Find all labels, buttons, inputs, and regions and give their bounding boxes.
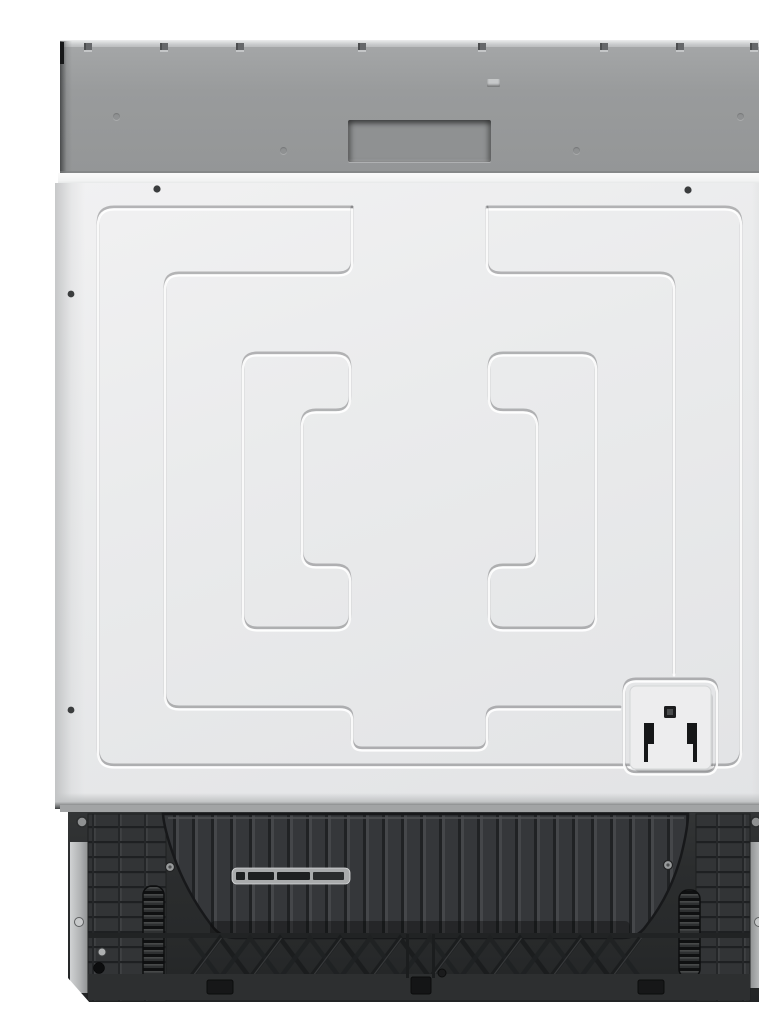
door-right-edge-shade xyxy=(752,183,759,809)
side-rail-left xyxy=(70,842,88,993)
base-top-sill xyxy=(60,805,759,812)
mounting-clip xyxy=(236,43,244,52)
mounting-clip xyxy=(750,43,758,52)
dishwasher-front-photo xyxy=(40,16,759,1016)
panel-screw-dimple xyxy=(280,147,287,154)
mounting-clip xyxy=(84,43,92,52)
panel-screw-dimple xyxy=(573,147,580,154)
panel-vent-hole xyxy=(487,79,500,87)
panel-corner-notch-left xyxy=(60,42,64,64)
machine-base xyxy=(68,811,759,1002)
panel-screw-dimple xyxy=(737,113,744,120)
mounting-clip xyxy=(160,43,168,52)
mounting-clip xyxy=(676,43,684,52)
mounting-clip xyxy=(600,43,608,52)
side-rail-right xyxy=(750,842,759,988)
panel-screw-dimple xyxy=(113,113,120,120)
door-left-edge-shade xyxy=(55,183,85,809)
display-window-cutout xyxy=(348,120,491,162)
mounting-clip xyxy=(358,43,366,52)
door-panel xyxy=(55,183,759,809)
mounting-clip xyxy=(478,43,486,52)
